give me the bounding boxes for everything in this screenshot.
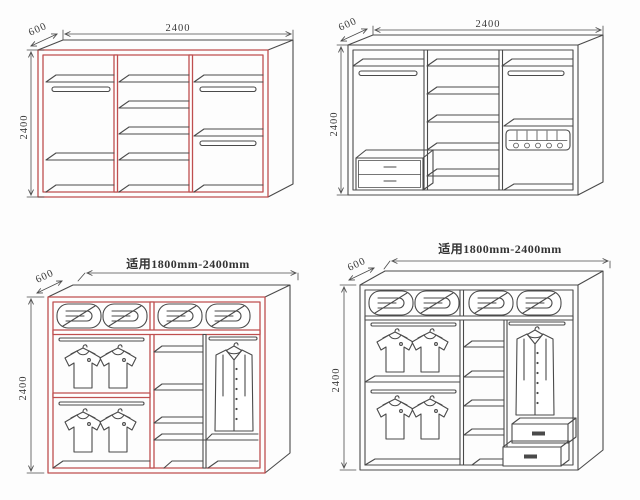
hanging-shirt [65,345,101,388]
folded-quilt [103,304,147,328]
vertical-divider [424,50,428,190]
height-dimension-label: 2400 [18,376,29,401]
hanger-rod [52,87,110,92]
folded-quilt [57,304,101,328]
technical-drawing-canvas: 2400 600 2400 2400 600 [0,0,640,500]
width-dimension-label: 2400 [476,19,501,30]
hanger-rod [209,337,257,340]
height-dimension-label: 2400 [329,112,340,137]
height-dimension-label: 2400 [19,115,30,140]
tie-belt-rack [506,130,570,150]
hanging-shirt [65,409,101,452]
pull-out-drawer [503,441,569,466]
size-range-label: 适用1800mm-2400mm [438,241,561,256]
wardrobe-drawings-svg: 2400 600 2400 2400 600 [0,0,640,500]
folded-quilt [206,304,250,328]
depth-dimension-label: 600 [337,16,359,34]
folded-quilt [415,291,459,315]
wardrobe-diagram-bottom-left: 适用1800mm-2400mm 600 2400 [18,256,298,473]
hanging-shirt [412,396,448,439]
hanging-coat [516,327,554,415]
hanger-rod [200,87,256,92]
hanging-shirt [377,396,413,439]
folded-quilt [369,291,413,315]
pull-out-drawer [512,418,576,443]
hanging-shirt [100,409,136,452]
hanger-rod [359,71,417,76]
vertical-divider [189,55,193,192]
sub-divider [504,320,507,465]
top-shelf [365,316,573,320]
hanger-rod [508,71,564,76]
vertical-divider [150,302,154,468]
vertical-divider [114,55,118,192]
sub-divider [203,335,206,469]
wardrobe-diagram-bottom-right: 适用1800mm-2400mm 600 2400 [331,241,610,470]
size-range-label: 适用1800mm-2400mm [126,256,249,271]
depth-dimension-label: 600 [27,21,49,39]
cabinet-front-frame [38,50,268,197]
mid-shelf [53,393,150,398]
hanging-shirt [377,329,413,372]
depth-dimension-label: 600 [34,268,56,286]
hanging-shirt [412,329,448,372]
hanger-rod [200,141,256,146]
folded-quilt [469,291,513,315]
drawer-unit [356,150,433,190]
hanger-rod [371,323,456,326]
height-dimension-label: 2400 [331,368,342,393]
hanging-shirt [100,345,136,388]
width-dimension-label: 2400 [166,23,191,34]
depth-dimension-label: 600 [346,256,368,274]
hanger-rod [59,402,144,405]
wardrobe-diagram-top-left: 2400 600 2400 [19,21,293,197]
hanging-coat [215,343,253,431]
hanger-rod [509,322,565,325]
hanger-rod [59,338,144,341]
wardrobe-diagram-top-right: 2400 600 2400 [329,16,603,195]
top-shelf [53,330,260,335]
folded-quilt [158,304,202,328]
folded-quilt [517,291,561,315]
hanger-rod [371,390,456,393]
